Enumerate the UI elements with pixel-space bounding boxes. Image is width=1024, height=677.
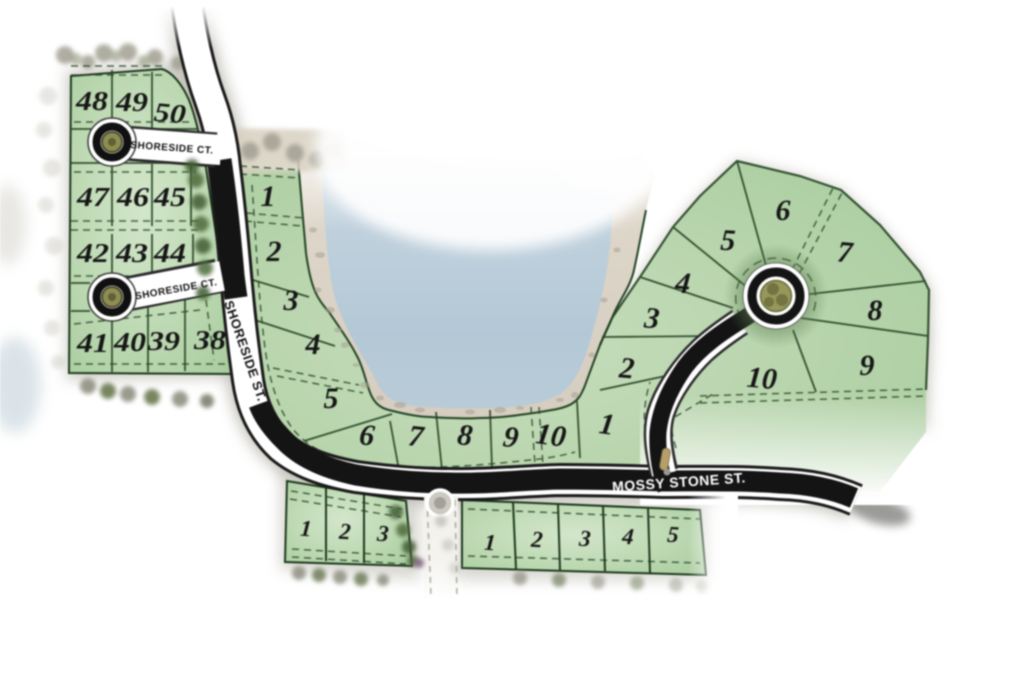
svg-text:5: 5 bbox=[720, 224, 737, 258]
svg-text:39: 39 bbox=[147, 326, 181, 356]
svg-text:43: 43 bbox=[115, 238, 148, 268]
svg-text:1: 1 bbox=[483, 530, 496, 556]
svg-text:38: 38 bbox=[193, 325, 227, 355]
svg-text:40: 40 bbox=[113, 327, 147, 357]
svg-text:8: 8 bbox=[868, 294, 883, 327]
svg-text:41: 41 bbox=[76, 328, 109, 358]
svg-text:2: 2 bbox=[266, 235, 282, 268]
svg-text:2: 2 bbox=[529, 527, 543, 553]
svg-text:48: 48 bbox=[75, 86, 109, 116]
svg-text:6: 6 bbox=[776, 194, 791, 227]
svg-text:3: 3 bbox=[642, 301, 661, 335]
svg-text:49: 49 bbox=[115, 87, 149, 117]
svg-text:50: 50 bbox=[153, 97, 188, 130]
svg-text:3: 3 bbox=[577, 526, 591, 552]
svg-text:42: 42 bbox=[76, 238, 109, 268]
svg-text:3: 3 bbox=[375, 521, 389, 547]
svg-text:5: 5 bbox=[666, 522, 679, 548]
svg-text:47: 47 bbox=[76, 182, 111, 212]
svg-text:10: 10 bbox=[746, 361, 779, 396]
svg-text:1: 1 bbox=[261, 180, 276, 213]
svg-text:10: 10 bbox=[534, 417, 568, 454]
svg-text:4: 4 bbox=[673, 266, 692, 300]
svg-text:4: 4 bbox=[305, 328, 321, 361]
svg-text:3: 3 bbox=[283, 284, 299, 317]
svg-text:2: 2 bbox=[617, 351, 636, 385]
svg-text:44: 44 bbox=[153, 238, 186, 268]
svg-text:2: 2 bbox=[337, 519, 351, 545]
svg-text:9: 9 bbox=[860, 349, 875, 382]
svg-text:1: 1 bbox=[299, 516, 312, 542]
svg-text:4: 4 bbox=[620, 524, 634, 550]
svg-text:5: 5 bbox=[324, 382, 339, 415]
svg-text:45: 45 bbox=[153, 182, 186, 212]
svg-text:46: 46 bbox=[116, 182, 150, 212]
